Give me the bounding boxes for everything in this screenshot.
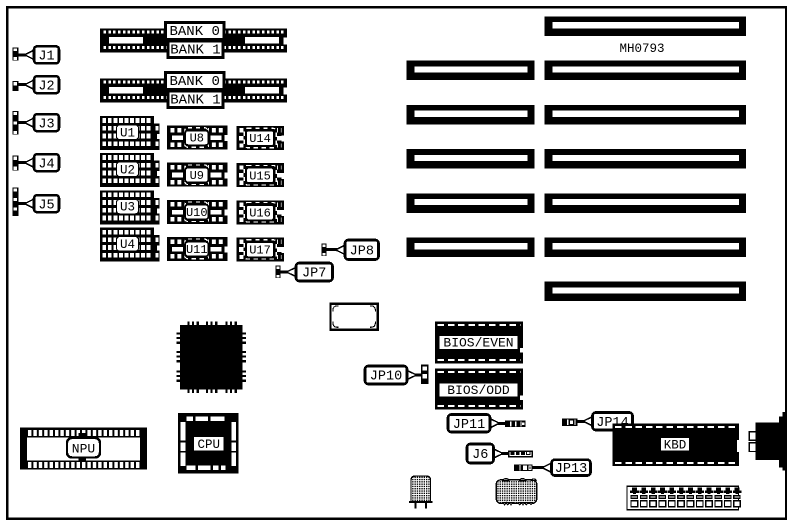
svg-text:BIOS/EVEN: BIOS/EVEN: [443, 336, 513, 351]
svg-text:J4: J4: [38, 157, 54, 172]
svg-text:KBD: KBD: [664, 438, 687, 452]
svg-text:U17: U17: [249, 244, 271, 258]
svg-text:J6: J6: [472, 448, 488, 463]
svg-text:U15: U15: [249, 169, 271, 183]
svg-text:NPU: NPU: [72, 442, 95, 457]
svg-text:BIOS/ODD: BIOS/ODD: [447, 383, 510, 398]
svg-text:JP8: JP8: [350, 244, 374, 259]
svg-text:BANK 1: BANK 1: [170, 43, 220, 59]
svg-text:U3: U3: [120, 201, 135, 215]
svg-text:CPU: CPU: [197, 438, 220, 452]
svg-text:U2: U2: [120, 163, 135, 177]
svg-text:J5: J5: [38, 198, 54, 213]
svg-text:U9: U9: [190, 169, 204, 183]
svg-text:JP10: JP10: [370, 370, 402, 385]
svg-text:MH0793: MH0793: [619, 42, 664, 56]
svg-text:BANK 0: BANK 0: [169, 74, 219, 90]
svg-text:U4: U4: [120, 238, 135, 252]
svg-text:JP13: JP13: [555, 462, 587, 477]
svg-text:U10: U10: [186, 206, 208, 220]
svg-text:BANK 1: BANK 1: [170, 93, 220, 109]
svg-text:U14: U14: [249, 132, 271, 146]
svg-text:U1: U1: [120, 126, 135, 140]
svg-text:J2: J2: [38, 79, 54, 94]
svg-text:J1: J1: [38, 49, 54, 64]
svg-text:U8: U8: [190, 132, 204, 146]
svg-text:JP7: JP7: [302, 267, 326, 282]
svg-text:BANK 0: BANK 0: [169, 24, 219, 40]
svg-text:JP11: JP11: [453, 418, 485, 433]
svg-text:J3: J3: [38, 117, 54, 132]
svg-text:U16: U16: [249, 207, 271, 221]
svg-text:U11: U11: [186, 243, 208, 257]
